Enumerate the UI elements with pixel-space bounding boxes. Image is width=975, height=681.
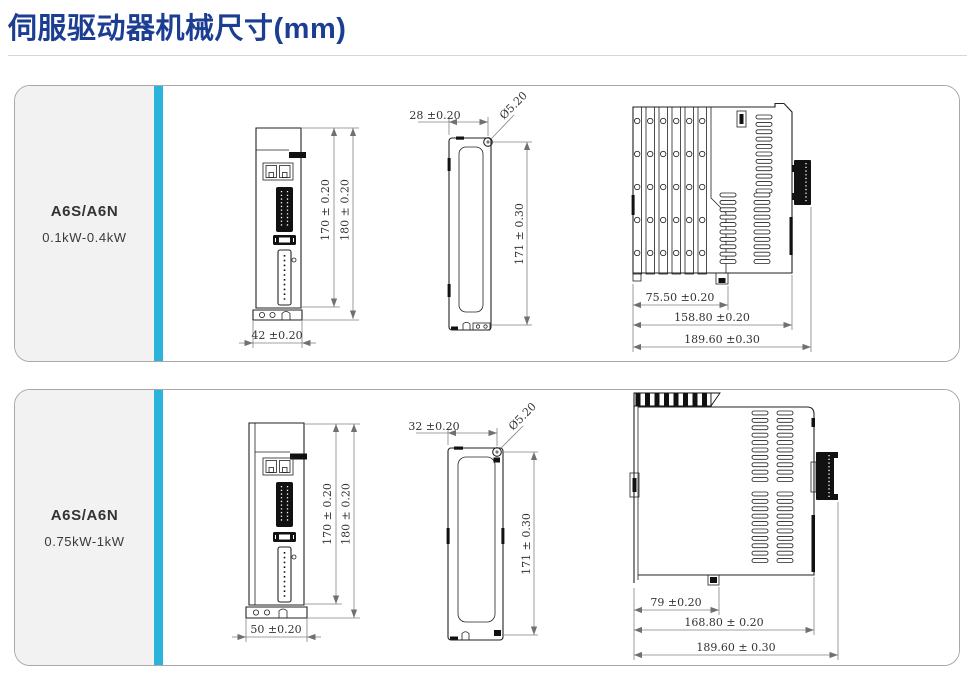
dimension-label: 189.60 ±0.30 (684, 333, 760, 346)
power-range: 0.1kW-0.4kW (42, 230, 126, 245)
dimension-label: 42 ±0.20 (251, 329, 302, 342)
panel2-label-column: A6S/A6N 0.75kW-1kW (15, 390, 154, 665)
spec-panel-large-drive: A6S/A6N 0.75kW-1kW (14, 389, 960, 666)
dimension-label: 75.50 ±0.20 (646, 291, 715, 304)
dimension-label: 50 ±0.20 (250, 623, 301, 636)
dimension-label: 171 ± 0.30 (520, 513, 533, 575)
spec-panel-small-drive: A6S/A6N 0.1kW-0.4kW (14, 85, 960, 362)
panel1-drawing-area: 170 ± 0.20 180 ± 0.20 42 ±0.20 (163, 86, 960, 361)
front-view-drawing (253, 128, 306, 320)
side-view-drawing (448, 137, 493, 331)
power-range: 0.75kW-1kW (44, 534, 124, 549)
panel2-drawing-area: 170 ± 0.20 180 ± 0.20 50 ±0.20 (163, 390, 960, 665)
technical-drawing-1: 170 ± 0.20 180 ± 0.20 42 ±0.20 (163, 86, 960, 359)
dimension-label: 32 ±0.20 (408, 420, 459, 433)
dimension-label: 180 ± 0.20 (339, 179, 352, 241)
dimension-label: 170 ± 0.20 (321, 483, 334, 545)
front-view-drawing (246, 423, 307, 618)
accent-bar (154, 390, 163, 665)
dimension-label: 28 ±0.20 (409, 109, 460, 122)
dimension-label: 171 ± 0.30 (513, 203, 526, 265)
accent-bar (154, 86, 163, 361)
technical-drawing-2: 170 ± 0.20 180 ± 0.20 50 ±0.20 (163, 390, 960, 663)
model-name: A6S/A6N (51, 507, 119, 524)
profile-view-dimensions: 79 ±0.20 168.80 ± 0.20 189.60 ± 0.30 (634, 502, 838, 660)
model-name: A6S/A6N (51, 203, 119, 220)
page-title: 伺服驱动器机械尺寸(mm) (8, 5, 346, 47)
front-view-dimensions: 170 ± 0.20 180 ± 0.20 42 ±0.20 (239, 128, 359, 348)
panel1-label-column: A6S/A6N 0.1kW-0.4kW (15, 86, 154, 361)
dimension-label: 79 ±0.20 (650, 596, 701, 609)
dimension-label: Ø5.20 (497, 89, 530, 122)
dimension-label: 158.80 ±0.20 (674, 311, 750, 324)
dimension-label: 180 ± 0.20 (340, 483, 353, 545)
side-view-drawing (447, 447, 505, 641)
profile-view-drawing (630, 393, 838, 585)
side-view-dimensions: 32 ±0.20 Ø5.20 171 ± 0.30 (408, 400, 539, 635)
side-view-dimensions: 28 ±0.20 Ø5.20 171 ± 0.30 (409, 89, 532, 325)
profile-view-drawing (632, 104, 811, 285)
dimension-label: 168.80 ± 0.20 (684, 616, 763, 629)
spec-sheet-page: 伺服驱动器机械尺寸(mm) A6S/A6N 0.1kW-0.4kW (0, 0, 975, 681)
dimension-label: Ø5.20 (506, 400, 539, 433)
title-divider (8, 55, 967, 56)
dimension-label: 189.60 ± 0.30 (696, 641, 775, 654)
dimension-label: 170 ± 0.20 (319, 179, 332, 241)
